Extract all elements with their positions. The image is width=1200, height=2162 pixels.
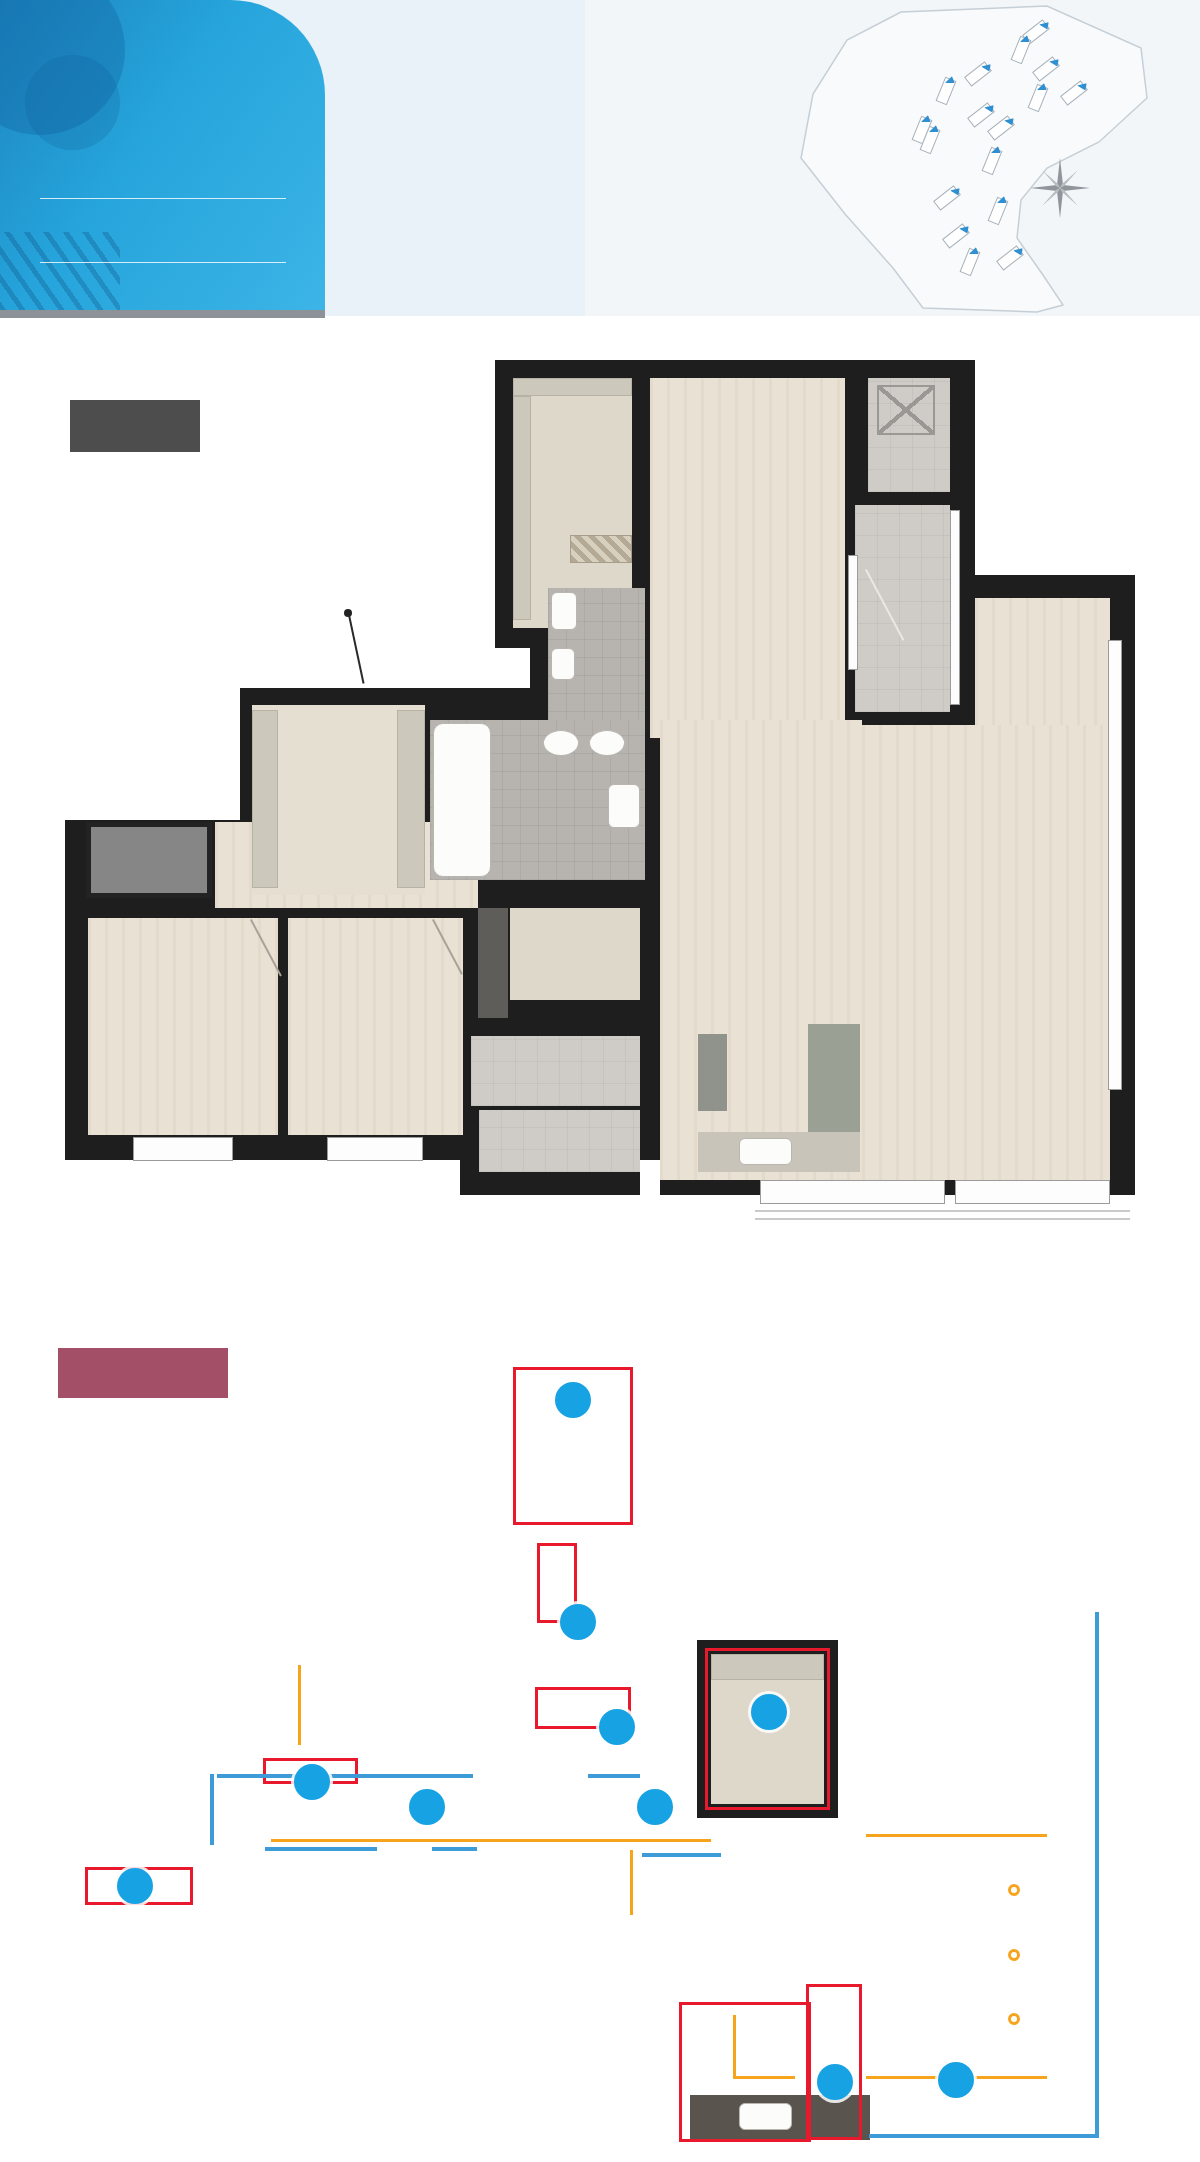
- option-badge-4: [938, 2062, 974, 2098]
- compass-rose-icon: [1030, 158, 1090, 218]
- living-window-right: [1108, 640, 1122, 1090]
- site-map: [585, 0, 1200, 316]
- floor-plan-extended: [65, 360, 1135, 1220]
- option-badge-2: [637, 1789, 673, 1825]
- option-area-kitchen: [679, 2002, 811, 2142]
- option-ring-orange: [1008, 1949, 1020, 1961]
- option-line-blue: [869, 2134, 1099, 2138]
- badge-divider-bottom: [40, 262, 286, 263]
- option-line-orange: [733, 2015, 736, 2078]
- option-badge-9: [560, 1604, 596, 1640]
- master-bedroom-floor: [650, 378, 845, 738]
- option-area-kitchen-tall: [806, 1984, 862, 2140]
- living-window-bottom: [955, 1180, 1110, 1204]
- living-floor-upper: [975, 598, 1110, 725]
- option-line-orange: [866, 1834, 1047, 1837]
- plan2-title: [58, 1348, 228, 1398]
- kitchen-appliance: [698, 1034, 727, 1111]
- entrance-closet: [252, 710, 278, 888]
- evacuation-hatch-icon: [877, 385, 935, 435]
- dressroom-cabinet: [570, 535, 632, 563]
- badge-decoration-stripes: [0, 232, 120, 310]
- option-line-orange: [298, 1665, 301, 1745]
- option-line-blue: [588, 1774, 640, 1778]
- kitchen-sink: [739, 1138, 792, 1165]
- elevator-core: [86, 822, 212, 898]
- option-badge-3: [409, 1789, 445, 1825]
- option-ring-orange: [1008, 2013, 1020, 2025]
- bedroom2-floor: [288, 918, 463, 1135]
- dressroom-closet: [513, 396, 531, 620]
- option-badge-6: [751, 1694, 787, 1730]
- bath2-toilet: [551, 592, 577, 630]
- bath1-sink: [589, 730, 625, 756]
- balcony2-floor: [471, 1036, 640, 1106]
- option-badge-5: [817, 2064, 853, 2100]
- option-badge-9: [599, 1709, 635, 1745]
- bedroom1-floor: [88, 918, 278, 1135]
- balcony1-door: [848, 555, 858, 670]
- badge-decoration-blob: [25, 55, 120, 150]
- compass: [1028, 158, 1092, 242]
- option-line-blue: [210, 1774, 214, 1845]
- bath2-sink: [551, 648, 575, 680]
- entrance-door-pointer-line: [348, 615, 365, 684]
- building-marker: [989, 264, 1049, 288]
- option-badge-7: [555, 1382, 591, 1418]
- option-line-blue: [432, 1847, 477, 1851]
- bath1-tub: [433, 723, 491, 877]
- bath1-sink: [543, 730, 579, 756]
- bedroom2-window: [327, 1137, 423, 1161]
- building-marker: [971, 167, 1031, 191]
- entrance-closet: [397, 710, 425, 888]
- option-ring-orange: [1008, 1884, 1020, 1896]
- building-marker: [1017, 104, 1077, 128]
- option-line-orange: [630, 1850, 633, 1915]
- building-marker: [909, 146, 969, 170]
- badge-shadow-bar: [0, 310, 325, 318]
- bath1-toilet: [608, 784, 640, 828]
- living-window-bottom: [760, 1180, 945, 1204]
- exterior-balcony-outline: [755, 1210, 1130, 1220]
- site-map-boundary: [585, 0, 1200, 316]
- plan-base: [65, 360, 1135, 1220]
- option-line-blue: [217, 1774, 473, 1778]
- balcony1-floor: [855, 505, 950, 712]
- dressroom-closet: [513, 378, 632, 396]
- option-badge-8: [117, 1868, 153, 1904]
- option-line-blue: [265, 1847, 377, 1851]
- unit-type-badge: [0, 0, 325, 310]
- pantry-floor: [510, 908, 640, 1000]
- outdoor-unit-floor: [479, 1110, 640, 1172]
- option-badge-1: [294, 1764, 330, 1800]
- option-line-orange: [733, 2076, 795, 2079]
- floor-plan-extended-option: [65, 1325, 1135, 2162]
- plan1-title: [70, 400, 200, 452]
- bedroom1-window: [133, 1137, 233, 1161]
- pantry-cabinet: [478, 908, 508, 1018]
- option-line-blue: [642, 1853, 721, 1857]
- badge-divider-top: [40, 198, 286, 199]
- living-floor: [862, 725, 1110, 1180]
- option-line-orange: [271, 1839, 711, 1842]
- balcony1-window: [950, 510, 960, 705]
- option-line-blue: [1095, 1612, 1099, 2138]
